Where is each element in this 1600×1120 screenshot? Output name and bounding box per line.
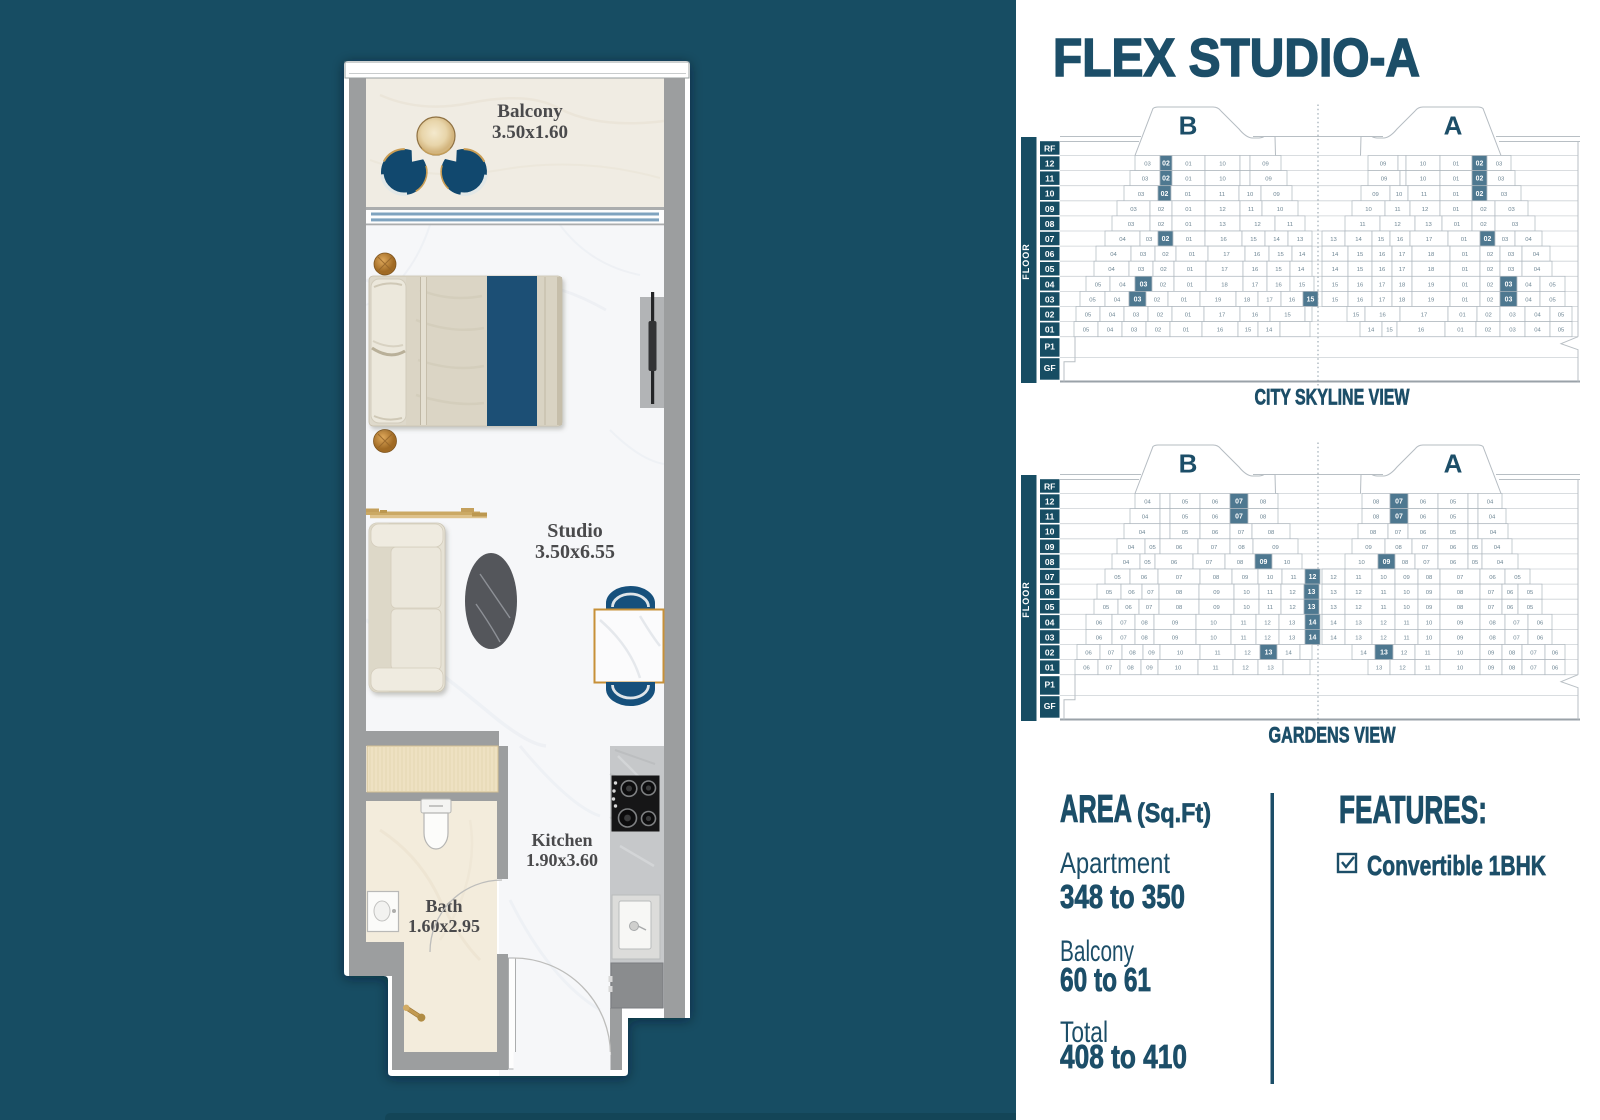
- svg-text:09: 09: [1383, 559, 1391, 566]
- svg-text:14: 14: [1330, 620, 1337, 626]
- svg-text:02: 02: [1476, 176, 1484, 183]
- svg-text:14: 14: [1332, 267, 1339, 273]
- svg-text:03: 03: [1502, 237, 1509, 243]
- svg-text:17: 17: [1399, 267, 1406, 273]
- svg-text:11: 11: [1424, 651, 1430, 657]
- svg-text:B: B: [1179, 449, 1198, 479]
- svg-text:07: 07: [1395, 499, 1403, 506]
- svg-text:01: 01: [1462, 282, 1469, 288]
- svg-text:03: 03: [1144, 162, 1151, 168]
- svg-text:10: 10: [1210, 620, 1217, 626]
- svg-text:05: 05: [1558, 313, 1565, 319]
- svg-text:11: 11: [1380, 605, 1386, 611]
- svg-text:03: 03: [1140, 252, 1147, 258]
- svg-text:10: 10: [1210, 635, 1217, 641]
- svg-text:Studio: Studio: [547, 520, 603, 542]
- svg-text:15: 15: [1250, 237, 1257, 243]
- svg-text:05: 05: [1103, 605, 1110, 611]
- svg-text:10: 10: [1045, 527, 1055, 537]
- svg-text:09: 09: [1260, 559, 1268, 566]
- svg-text:12: 12: [1289, 590, 1296, 596]
- svg-text:09: 09: [1403, 575, 1410, 581]
- svg-text:06: 06: [1141, 575, 1148, 581]
- svg-text:03: 03: [1140, 281, 1148, 288]
- svg-text:03: 03: [1509, 313, 1516, 319]
- svg-text:08: 08: [1176, 590, 1183, 596]
- svg-text:07: 07: [1423, 560, 1430, 566]
- svg-text:03: 03: [1512, 222, 1519, 228]
- svg-text:18: 18: [1399, 297, 1406, 303]
- svg-text:15: 15: [1277, 252, 1284, 258]
- svg-text:11: 11: [1248, 207, 1254, 213]
- svg-text:08: 08: [1489, 635, 1496, 641]
- svg-text:P1: P1: [1044, 342, 1055, 352]
- svg-text:16: 16: [1252, 313, 1259, 319]
- svg-text:10: 10: [1243, 605, 1250, 611]
- svg-text:17: 17: [1379, 282, 1386, 288]
- svg-text:02: 02: [1480, 222, 1487, 228]
- svg-text:08: 08: [1457, 605, 1464, 611]
- svg-text:07: 07: [1176, 575, 1183, 581]
- svg-text:08: 08: [1457, 590, 1464, 596]
- svg-text:10: 10: [1045, 189, 1055, 199]
- svg-text:02: 02: [1045, 310, 1055, 320]
- svg-text:12: 12: [1045, 159, 1055, 169]
- svg-text:06: 06: [1045, 587, 1055, 597]
- svg-text:08: 08: [1395, 545, 1402, 551]
- svg-text:18: 18: [1428, 252, 1435, 258]
- svg-text:14: 14: [1285, 651, 1292, 657]
- svg-text:02: 02: [1155, 328, 1162, 334]
- svg-text:01: 01: [1453, 207, 1460, 213]
- svg-text:07: 07: [1238, 530, 1245, 536]
- svg-text:FEATURES:: FEATURES:: [1339, 789, 1487, 832]
- svg-text:16: 16: [1379, 313, 1386, 319]
- svg-text:FLOOR: FLOOR: [1021, 243, 1031, 280]
- svg-text:11: 11: [1380, 590, 1386, 596]
- svg-text:17: 17: [1252, 282, 1259, 288]
- svg-text:12: 12: [1264, 620, 1271, 626]
- svg-text:12: 12: [1242, 666, 1249, 672]
- svg-text:06: 06: [1420, 515, 1427, 521]
- svg-text:11: 11: [1424, 666, 1430, 672]
- svg-text:15: 15: [1332, 297, 1339, 303]
- svg-text:08: 08: [1129, 651, 1136, 657]
- svg-text:04: 04: [1525, 237, 1532, 243]
- svg-text:07: 07: [1513, 635, 1520, 641]
- svg-text:02: 02: [1487, 282, 1494, 288]
- svg-text:02: 02: [1162, 252, 1169, 258]
- svg-text:(Sq.Ft): (Sq.Ft): [1137, 798, 1211, 828]
- svg-text:08: 08: [1176, 605, 1183, 611]
- svg-text:08: 08: [1127, 666, 1134, 672]
- svg-text:02: 02: [1487, 267, 1494, 273]
- svg-text:05: 05: [1450, 530, 1457, 536]
- svg-text:14: 14: [1309, 619, 1317, 626]
- svg-text:15: 15: [1378, 237, 1385, 243]
- svg-text:14: 14: [1368, 328, 1375, 334]
- svg-text:05: 05: [1527, 590, 1534, 596]
- svg-text:03: 03: [1505, 296, 1513, 303]
- svg-text:12: 12: [1380, 620, 1387, 626]
- svg-text:02: 02: [1487, 297, 1494, 303]
- svg-text:13: 13: [1376, 666, 1383, 672]
- svg-text:09: 09: [1457, 620, 1464, 626]
- svg-text:03: 03: [1130, 207, 1137, 213]
- svg-text:09: 09: [1265, 177, 1272, 183]
- svg-text:408 to 410: 408 to 410: [1060, 1038, 1187, 1075]
- svg-text:01: 01: [1185, 313, 1192, 319]
- svg-text:06: 06: [1212, 515, 1219, 521]
- svg-text:02: 02: [1484, 236, 1492, 243]
- svg-text:07: 07: [1530, 666, 1537, 672]
- svg-text:10: 10: [1175, 666, 1182, 672]
- svg-text:03: 03: [1508, 267, 1515, 273]
- svg-text:03: 03: [1146, 237, 1153, 243]
- svg-text:06: 06: [1171, 560, 1178, 566]
- svg-text:09: 09: [1381, 177, 1388, 183]
- svg-text:17: 17: [1426, 237, 1433, 243]
- svg-text:02: 02: [1045, 648, 1055, 658]
- svg-text:14: 14: [1330, 635, 1337, 641]
- svg-text:18: 18: [1428, 267, 1435, 273]
- svg-text:04: 04: [1107, 328, 1114, 334]
- svg-text:02: 02: [1160, 282, 1167, 288]
- svg-text:01: 01: [1457, 328, 1464, 334]
- svg-text:09: 09: [1213, 590, 1220, 596]
- svg-text:13: 13: [1355, 620, 1362, 626]
- svg-text:16: 16: [1289, 297, 1296, 303]
- svg-text:07: 07: [1045, 572, 1055, 582]
- svg-text:09: 09: [1148, 651, 1155, 657]
- svg-text:12: 12: [1254, 222, 1261, 228]
- svg-text:15: 15: [1275, 267, 1282, 273]
- svg-text:19: 19: [1215, 297, 1222, 303]
- svg-text:09: 09: [1045, 204, 1055, 214]
- svg-text:03: 03: [1142, 177, 1149, 183]
- svg-text:08: 08: [1260, 500, 1267, 506]
- svg-text:11: 11: [1045, 174, 1054, 184]
- svg-text:16: 16: [1418, 328, 1425, 334]
- svg-text:04: 04: [1108, 267, 1115, 273]
- svg-text:16: 16: [1252, 267, 1259, 273]
- svg-text:10: 10: [1426, 620, 1433, 626]
- svg-text:09: 09: [1365, 545, 1372, 551]
- svg-text:07: 07: [1146, 605, 1153, 611]
- svg-text:08: 08: [1373, 500, 1380, 506]
- svg-text:05: 05: [1527, 605, 1534, 611]
- svg-text:60 to 61: 60 to 61: [1060, 961, 1151, 998]
- svg-text:04: 04: [1045, 617, 1055, 627]
- svg-text:12: 12: [1422, 207, 1429, 213]
- svg-text:09: 09: [1380, 162, 1387, 168]
- svg-text:15: 15: [1299, 282, 1306, 288]
- svg-text:1.90x3.60: 1.90x3.60: [526, 850, 598, 870]
- svg-text:07: 07: [1513, 620, 1520, 626]
- svg-text:14: 14: [1299, 252, 1306, 258]
- svg-text:03: 03: [1509, 328, 1516, 334]
- svg-text:16: 16: [1397, 237, 1404, 243]
- svg-text:17: 17: [1221, 267, 1228, 273]
- svg-text:09: 09: [1242, 575, 1249, 581]
- svg-text:01: 01: [1185, 162, 1192, 168]
- svg-text:01: 01: [1185, 222, 1192, 228]
- svg-text:04: 04: [1139, 530, 1146, 536]
- svg-text:19: 19: [1428, 282, 1435, 288]
- svg-text:01: 01: [1462, 267, 1469, 273]
- svg-text:07: 07: [1395, 514, 1403, 521]
- svg-text:GF: GF: [1044, 363, 1056, 373]
- svg-text:03: 03: [1508, 207, 1515, 213]
- svg-text:04: 04: [1123, 560, 1130, 566]
- svg-text:08: 08: [1237, 560, 1244, 566]
- svg-text:14: 14: [1332, 252, 1339, 258]
- svg-text:11: 11: [1240, 635, 1246, 641]
- svg-text:02: 02: [1162, 236, 1170, 243]
- svg-text:01: 01: [1045, 325, 1055, 335]
- svg-text:08: 08: [1045, 557, 1055, 567]
- svg-text:10: 10: [1219, 162, 1226, 168]
- svg-text:01: 01: [1462, 252, 1469, 258]
- svg-text:05: 05: [1083, 328, 1090, 334]
- svg-text:01: 01: [1181, 297, 1188, 303]
- svg-text:15: 15: [1245, 328, 1252, 334]
- svg-text:16: 16: [1217, 328, 1224, 334]
- svg-text:02: 02: [1158, 222, 1165, 228]
- svg-text:08: 08: [1045, 219, 1055, 229]
- svg-text:10: 10: [1380, 575, 1387, 581]
- svg-text:04: 04: [1487, 500, 1494, 506]
- svg-text:12: 12: [1330, 575, 1337, 581]
- svg-text:02: 02: [1162, 161, 1170, 168]
- svg-text:07: 07: [1422, 545, 1429, 551]
- svg-text:05: 05: [1089, 297, 1096, 303]
- svg-text:11: 11: [1403, 635, 1409, 641]
- svg-text:03: 03: [1508, 252, 1515, 258]
- svg-text:04: 04: [1110, 252, 1117, 258]
- svg-text:04: 04: [1497, 560, 1504, 566]
- svg-text:11: 11: [1359, 222, 1365, 228]
- svg-text:04: 04: [1109, 313, 1116, 319]
- svg-text:09: 09: [1213, 605, 1220, 611]
- svg-text:15: 15: [1332, 282, 1339, 288]
- svg-text:11: 11: [1267, 590, 1273, 596]
- svg-text:16: 16: [1254, 252, 1261, 258]
- svg-text:08: 08: [1141, 620, 1148, 626]
- svg-text:03: 03: [1138, 192, 1145, 198]
- svg-text:09: 09: [1172, 620, 1179, 626]
- svg-text:08: 08: [1509, 651, 1516, 657]
- svg-text:14: 14: [1266, 328, 1273, 334]
- svg-text:03: 03: [1501, 192, 1508, 198]
- svg-text:FLOOR: FLOOR: [1021, 581, 1031, 618]
- svg-text:09: 09: [1426, 605, 1433, 611]
- svg-text:10: 10: [1177, 651, 1184, 657]
- svg-text:04: 04: [1119, 237, 1126, 243]
- svg-text:09: 09: [1146, 666, 1153, 672]
- svg-text:11: 11: [1267, 605, 1273, 611]
- svg-text:08: 08: [1509, 666, 1516, 672]
- svg-text:09: 09: [1457, 635, 1464, 641]
- svg-text:06: 06: [1212, 500, 1219, 506]
- svg-text:03: 03: [1045, 294, 1055, 304]
- svg-text:10: 10: [1267, 575, 1274, 581]
- svg-text:04: 04: [1533, 252, 1540, 258]
- svg-text:16: 16: [1357, 282, 1364, 288]
- svg-text:08: 08: [1268, 530, 1275, 536]
- svg-text:17: 17: [1379, 297, 1386, 303]
- svg-text:04: 04: [1045, 279, 1055, 289]
- svg-text:02: 02: [1480, 207, 1487, 213]
- svg-text:11: 11: [1240, 620, 1246, 626]
- svg-text:12: 12: [1244, 651, 1251, 657]
- svg-text:12: 12: [1045, 497, 1055, 507]
- svg-text:04: 04: [1494, 545, 1501, 551]
- svg-text:04: 04: [1525, 297, 1532, 303]
- svg-text:05: 05: [1144, 560, 1151, 566]
- svg-text:13: 13: [1297, 237, 1304, 243]
- svg-text:05: 05: [1182, 500, 1189, 506]
- svg-text:05: 05: [1149, 545, 1156, 551]
- svg-text:03: 03: [1045, 632, 1055, 642]
- svg-text:06: 06: [1096, 620, 1103, 626]
- svg-text:17: 17: [1421, 313, 1428, 319]
- svg-text:18: 18: [1244, 297, 1251, 303]
- svg-text:05: 05: [1549, 282, 1556, 288]
- svg-text:06: 06: [1176, 545, 1183, 551]
- svg-text:13: 13: [1380, 650, 1388, 657]
- svg-text:04: 04: [1534, 267, 1541, 273]
- svg-text:1.60x2.95: 1.60x2.95: [408, 916, 480, 936]
- svg-text:06: 06: [1420, 500, 1427, 506]
- svg-text:07: 07: [1206, 560, 1213, 566]
- svg-text:06: 06: [1450, 545, 1457, 551]
- svg-text:09: 09: [1045, 542, 1055, 552]
- svg-text:GF: GF: [1044, 701, 1056, 711]
- svg-text:07: 07: [1211, 545, 1218, 551]
- svg-text:06: 06: [1537, 635, 1544, 641]
- svg-text:01: 01: [1462, 297, 1469, 303]
- svg-text:04: 04: [1128, 545, 1135, 551]
- svg-text:07: 07: [1488, 605, 1495, 611]
- svg-text:16: 16: [1220, 237, 1227, 243]
- svg-text:17: 17: [1266, 297, 1273, 303]
- svg-text:10: 10: [1420, 162, 1427, 168]
- svg-text:13: 13: [1330, 237, 1337, 243]
- svg-text:04: 04: [1142, 515, 1149, 521]
- svg-text:05: 05: [1450, 500, 1457, 506]
- svg-text:11: 11: [1421, 192, 1427, 198]
- svg-text:13: 13: [1289, 635, 1296, 641]
- svg-text:17: 17: [1223, 252, 1230, 258]
- svg-text:13: 13: [1219, 222, 1226, 228]
- svg-text:04: 04: [1119, 282, 1126, 288]
- svg-text:348 to 350: 348 to 350: [1060, 878, 1185, 915]
- svg-text:08: 08: [1373, 515, 1380, 521]
- svg-text:03: 03: [1128, 222, 1135, 228]
- svg-text:01: 01: [1186, 237, 1193, 243]
- svg-text:09: 09: [1272, 545, 1279, 551]
- svg-text:10: 10: [1396, 192, 1403, 198]
- svg-text:RF: RF: [1044, 481, 1055, 491]
- svg-text:06: 06: [1212, 530, 1219, 536]
- svg-text:CITY SKYLINE VIEW: CITY SKYLINE VIEW: [1255, 385, 1410, 410]
- svg-text:06: 06: [1507, 605, 1514, 611]
- svg-text:17: 17: [1219, 313, 1226, 319]
- svg-text:18: 18: [1399, 282, 1406, 288]
- svg-text:11: 11: [1403, 620, 1409, 626]
- svg-text:04: 04: [1490, 530, 1497, 536]
- svg-text:03: 03: [1133, 313, 1140, 319]
- svg-text:11: 11: [1287, 222, 1293, 228]
- svg-text:11: 11: [1394, 207, 1400, 213]
- svg-text:03: 03: [1505, 281, 1513, 288]
- svg-text:16: 16: [1379, 252, 1386, 258]
- svg-text:Apartment: Apartment: [1060, 847, 1171, 880]
- svg-text:08: 08: [1260, 515, 1267, 521]
- svg-text:13: 13: [1355, 635, 1362, 641]
- svg-text:10: 10: [1426, 635, 1433, 641]
- svg-text:14: 14: [1309, 634, 1317, 641]
- svg-text:03: 03: [1138, 267, 1145, 273]
- svg-text:07: 07: [1120, 635, 1127, 641]
- svg-text:15: 15: [1357, 252, 1364, 258]
- svg-text:07: 07: [1488, 590, 1495, 596]
- svg-text:A: A: [1444, 449, 1463, 479]
- svg-text:09: 09: [1262, 162, 1269, 168]
- svg-text:02: 02: [1157, 313, 1164, 319]
- svg-text:02: 02: [1476, 191, 1484, 198]
- svg-text:10: 10: [1403, 590, 1410, 596]
- svg-text:05: 05: [1095, 282, 1102, 288]
- svg-text:07: 07: [1045, 234, 1055, 244]
- svg-text:A: A: [1444, 111, 1463, 141]
- svg-text:09: 09: [1372, 192, 1379, 198]
- svg-text:12: 12: [1394, 222, 1401, 228]
- svg-text:14: 14: [1360, 651, 1367, 657]
- svg-text:06: 06: [1045, 249, 1055, 259]
- svg-text:01: 01: [1459, 313, 1466, 319]
- svg-text:01: 01: [1461, 237, 1468, 243]
- svg-text:06: 06: [1552, 666, 1559, 672]
- svg-text:P1: P1: [1044, 680, 1055, 690]
- svg-text:03: 03: [1496, 162, 1503, 168]
- svg-text:13: 13: [1308, 589, 1316, 596]
- svg-text:02: 02: [1162, 176, 1170, 183]
- svg-text:05: 05: [1472, 545, 1479, 551]
- svg-text:11: 11: [1355, 575, 1361, 581]
- svg-text:02: 02: [1476, 161, 1484, 168]
- svg-text:04: 04: [1534, 328, 1541, 334]
- svg-text:10: 10: [1457, 666, 1464, 672]
- svg-text:09: 09: [1172, 635, 1179, 641]
- svg-text:06: 06: [1507, 590, 1514, 596]
- svg-text:12: 12: [1401, 651, 1408, 657]
- svg-text:07: 07: [1395, 530, 1402, 536]
- svg-text:17: 17: [1399, 252, 1406, 258]
- svg-text:19: 19: [1428, 297, 1435, 303]
- svg-text:09: 09: [1488, 666, 1495, 672]
- svg-text:11: 11: [1219, 192, 1225, 198]
- svg-text:Balcony: Balcony: [497, 101, 563, 122]
- svg-text:02: 02: [1161, 191, 1169, 198]
- svg-text:09: 09: [1273, 192, 1280, 198]
- svg-text:02: 02: [1160, 267, 1167, 273]
- svg-text:05: 05: [1514, 575, 1521, 581]
- svg-text:15: 15: [1353, 313, 1360, 319]
- svg-text:01: 01: [1187, 267, 1194, 273]
- svg-text:01: 01: [1454, 222, 1461, 228]
